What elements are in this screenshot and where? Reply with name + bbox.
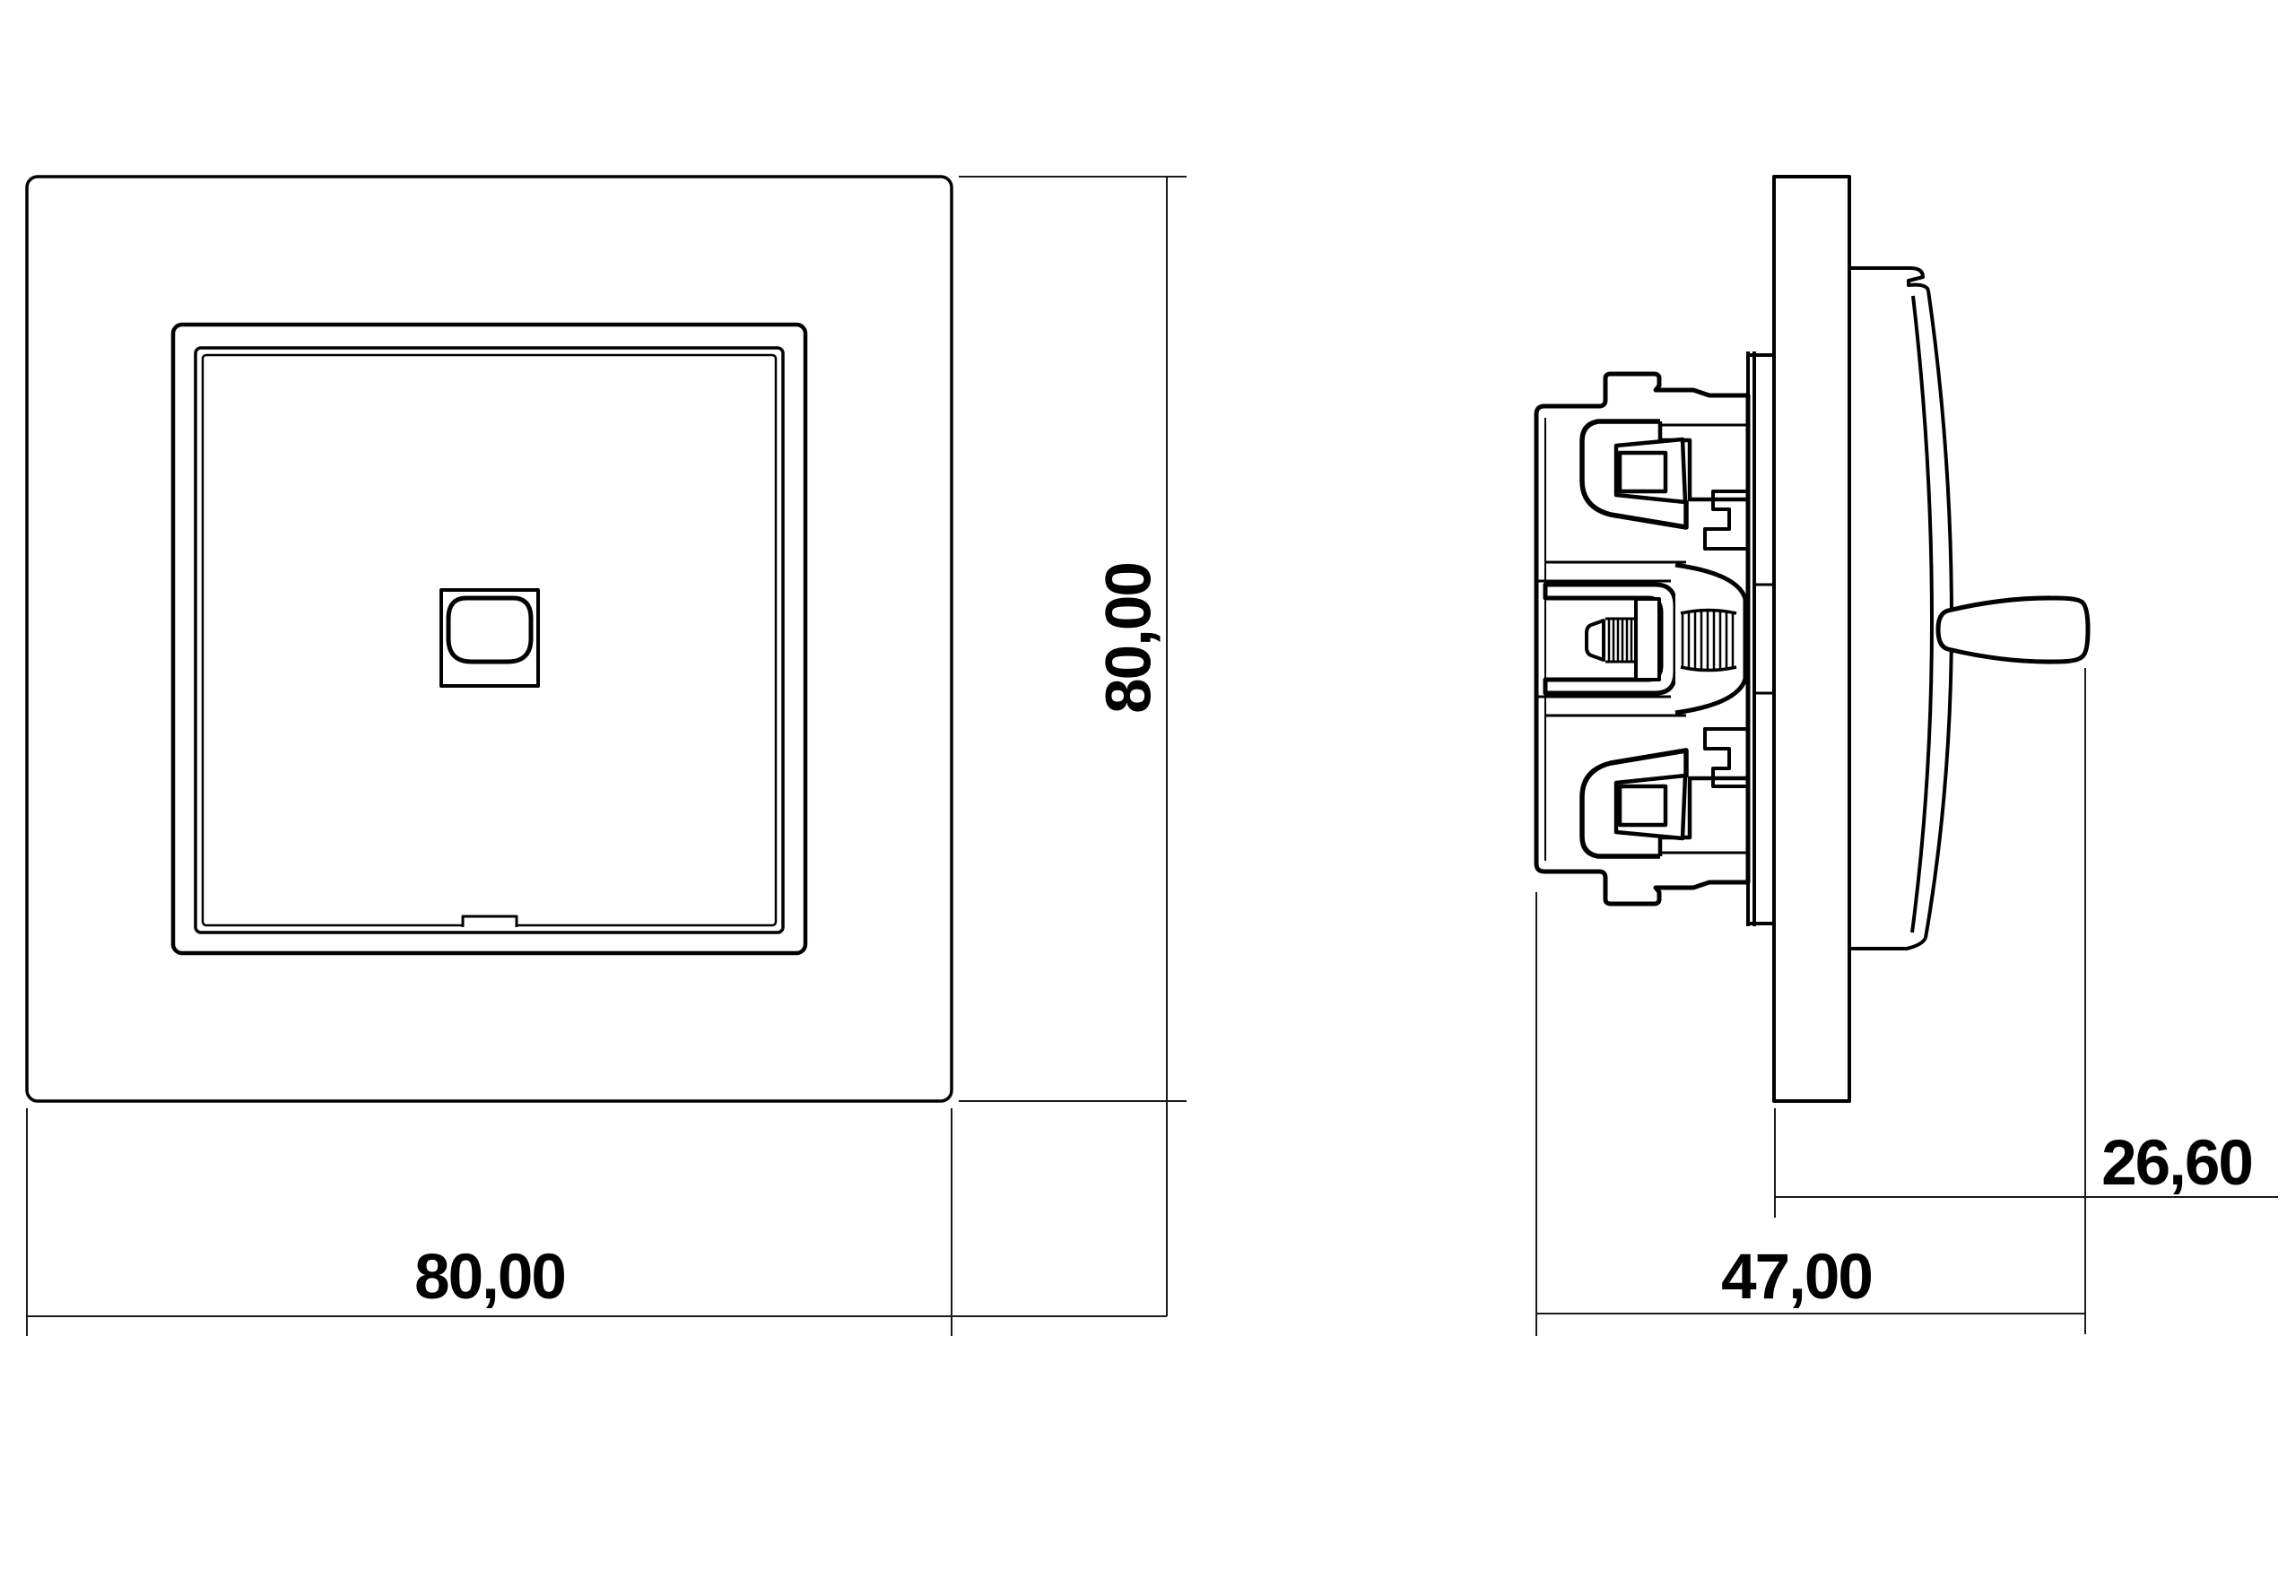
dim-label-front-width: 80,00	[414, 1245, 565, 1309]
front-inner-frame	[173, 325, 805, 953]
dim-label-side-protrusion: 26,60	[2101, 1132, 2252, 1195]
side-toggle-lever	[1938, 598, 2088, 662]
line-art	[0, 0, 2296, 1596]
front-outer-plate	[27, 177, 952, 1101]
front-rocker-outer	[196, 348, 783, 932]
dim-label-side-depth: 47,00	[1721, 1245, 1872, 1309]
side-rocker-inner-arc	[1912, 296, 1932, 932]
side-view	[1536, 177, 2088, 1101]
side-clamp-right-body	[1675, 565, 1745, 713]
dimension-lines	[27, 177, 2278, 1336]
front-rocker-notch	[463, 916, 517, 927]
side-frame-plate	[1774, 177, 1849, 1101]
front-rocker-inner	[203, 355, 776, 925]
dim-label-front-height: 80,00	[1098, 563, 1161, 714]
front-center-button-inner	[448, 598, 531, 662]
front-view	[27, 177, 952, 1101]
front-center-button-outer	[441, 590, 538, 686]
side-mounting-flange	[1748, 351, 1774, 926]
side-rocker-adapter	[1849, 268, 1952, 949]
technical-drawing-canvas: 80,00 80,00 26,60 47,00	[0, 0, 2296, 1596]
